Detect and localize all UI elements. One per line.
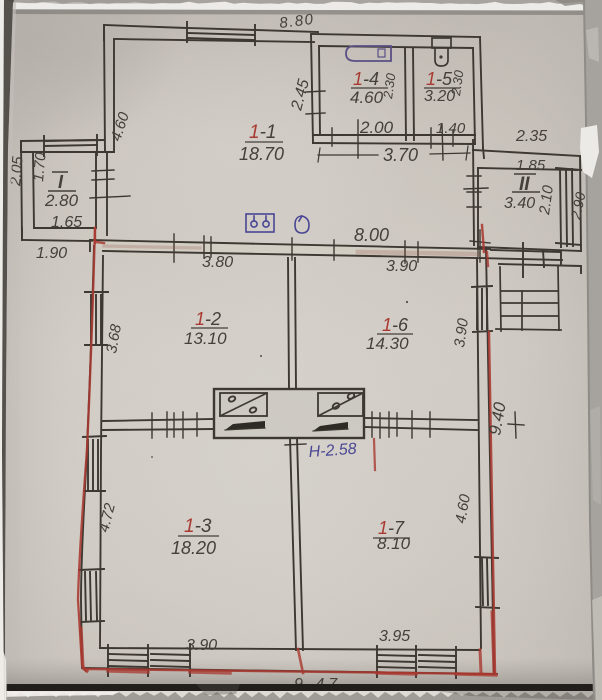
svg-text:8.10: 8.10 xyxy=(377,534,411,553)
svg-text:H-2.58: H-2.58 xyxy=(308,441,357,461)
svg-text:1-3: 1-3 xyxy=(184,516,212,537)
svg-text:3.40: 3.40 xyxy=(504,195,535,212)
svg-text:2.80: 2.80 xyxy=(44,191,79,210)
svg-text:1-1: 1-1 xyxy=(249,122,276,143)
svg-text:1-4: 1-4 xyxy=(353,69,379,89)
svg-text:4.60: 4.60 xyxy=(350,88,384,107)
svg-text:1.85: 1.85 xyxy=(516,157,546,174)
svg-text:13.10: 13.10 xyxy=(184,329,227,348)
svg-text:1-6: 1-6 xyxy=(382,315,409,335)
svg-text:1.40: 1.40 xyxy=(436,120,466,137)
svg-text:18.70: 18.70 xyxy=(239,144,284,164)
svg-text:2.35: 2.35 xyxy=(515,128,547,145)
svg-text:3.90: 3.90 xyxy=(186,637,217,654)
svg-text:2.00: 2.00 xyxy=(359,118,394,137)
svg-text:3.95: 3.95 xyxy=(379,628,410,645)
svg-text:3.70: 3.70 xyxy=(383,145,418,165)
svg-text:14.30: 14.30 xyxy=(366,334,409,353)
svg-text:1-2: 1-2 xyxy=(195,309,221,329)
svg-text:3.90: 3.90 xyxy=(386,258,417,275)
svg-text:1.65: 1.65 xyxy=(51,214,82,231)
svg-text:18.20: 18.20 xyxy=(171,538,216,558)
svg-text:8.00: 8.00 xyxy=(354,225,389,245)
svg-text:3.80: 3.80 xyxy=(202,254,233,271)
svg-text:1.90: 1.90 xyxy=(36,245,67,262)
svg-text:1.70: 1.70 xyxy=(30,151,50,182)
